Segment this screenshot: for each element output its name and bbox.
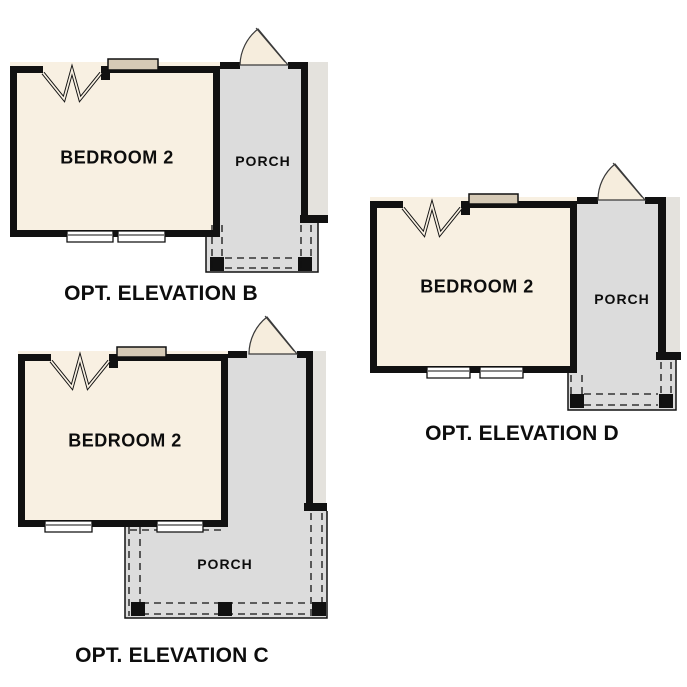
porch-label-c: PORCH	[197, 556, 253, 572]
roof-overhang-strip	[313, 351, 326, 503]
caption-b: OPT. ELEVATION B	[64, 282, 258, 306]
porch-area	[577, 197, 658, 373]
porch-label-d: PORCH	[594, 291, 650, 307]
window-header-symbol	[117, 347, 166, 357]
porch-label-b: PORCH	[235, 153, 291, 169]
door-swing-icon	[240, 29, 288, 65]
door-swing-icon	[249, 317, 297, 354]
window-header-symbol	[469, 194, 518, 204]
caption-c: OPT. ELEVATION C	[75, 644, 269, 668]
door-swing-icon	[598, 164, 645, 200]
floorplan-sheet: BEDROOM 2 PORCH OPT. ELEVATION B BEDROOM…	[0, 0, 687, 687]
roof-overhang-strip	[666, 197, 680, 352]
room-label-b: BEDROOM 2	[60, 148, 174, 169]
elevation-c-plan	[18, 316, 327, 618]
room-label-d: BEDROOM 2	[420, 277, 534, 298]
porch-area	[228, 351, 313, 525]
caption-d: OPT. ELEVATION D	[425, 422, 619, 446]
room-label-c: BEDROOM 2	[68, 431, 182, 452]
roof-overhang-strip	[308, 62, 328, 215]
window-header-symbol	[108, 59, 158, 70]
porch-area	[220, 62, 308, 223]
floorplan-canvas	[0, 0, 687, 687]
